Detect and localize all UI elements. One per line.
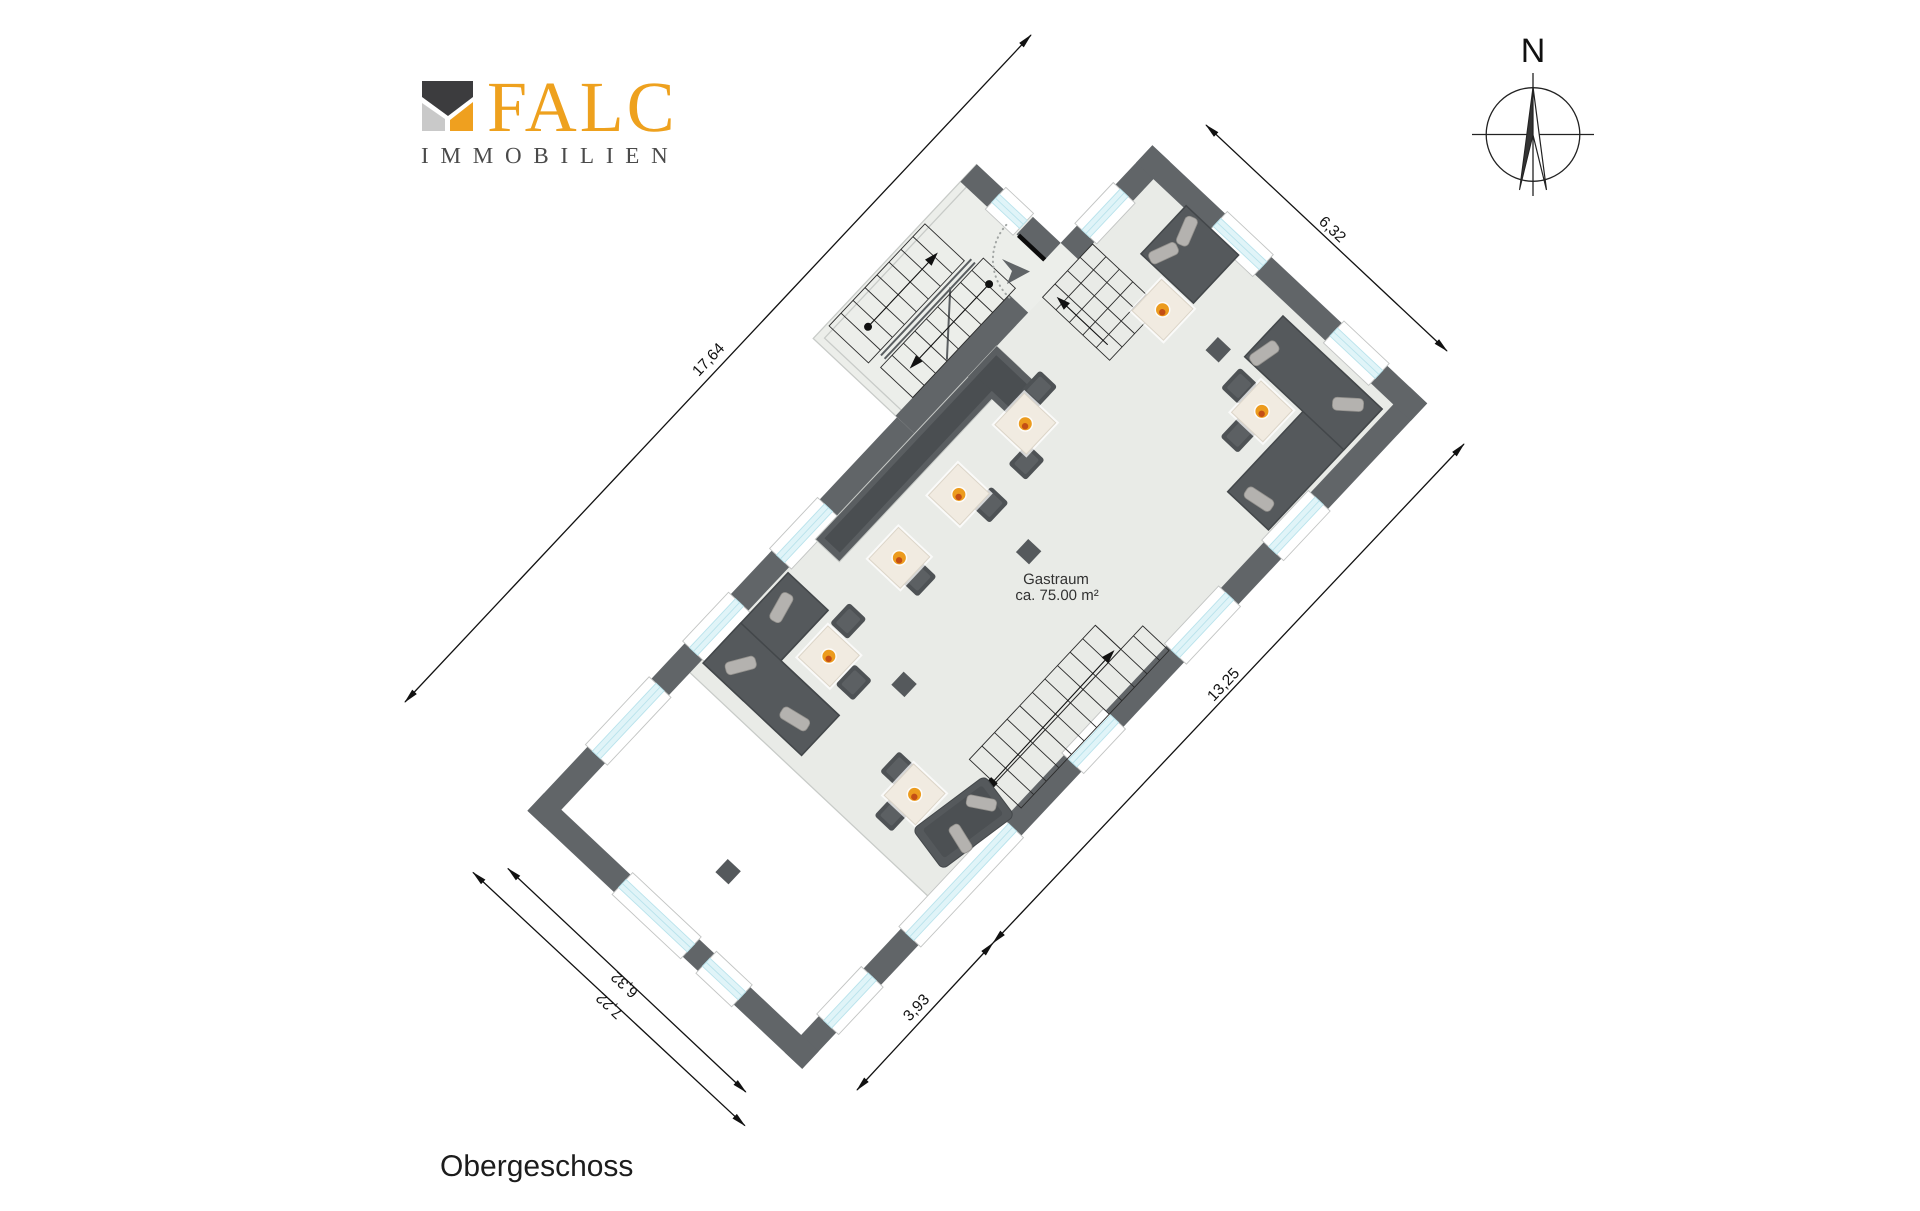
svg-text:FALC: FALC bbox=[487, 67, 678, 147]
svg-text:IMMOBILIEN: IMMOBILIEN bbox=[421, 143, 680, 168]
svg-text:N: N bbox=[1521, 32, 1546, 70]
svg-text:Gastraum: Gastraum bbox=[1023, 571, 1089, 588]
svg-text:Obergeschoss: Obergeschoss bbox=[440, 1150, 633, 1183]
svg-text:ca. 75.00 m²: ca. 75.00 m² bbox=[1015, 587, 1098, 604]
